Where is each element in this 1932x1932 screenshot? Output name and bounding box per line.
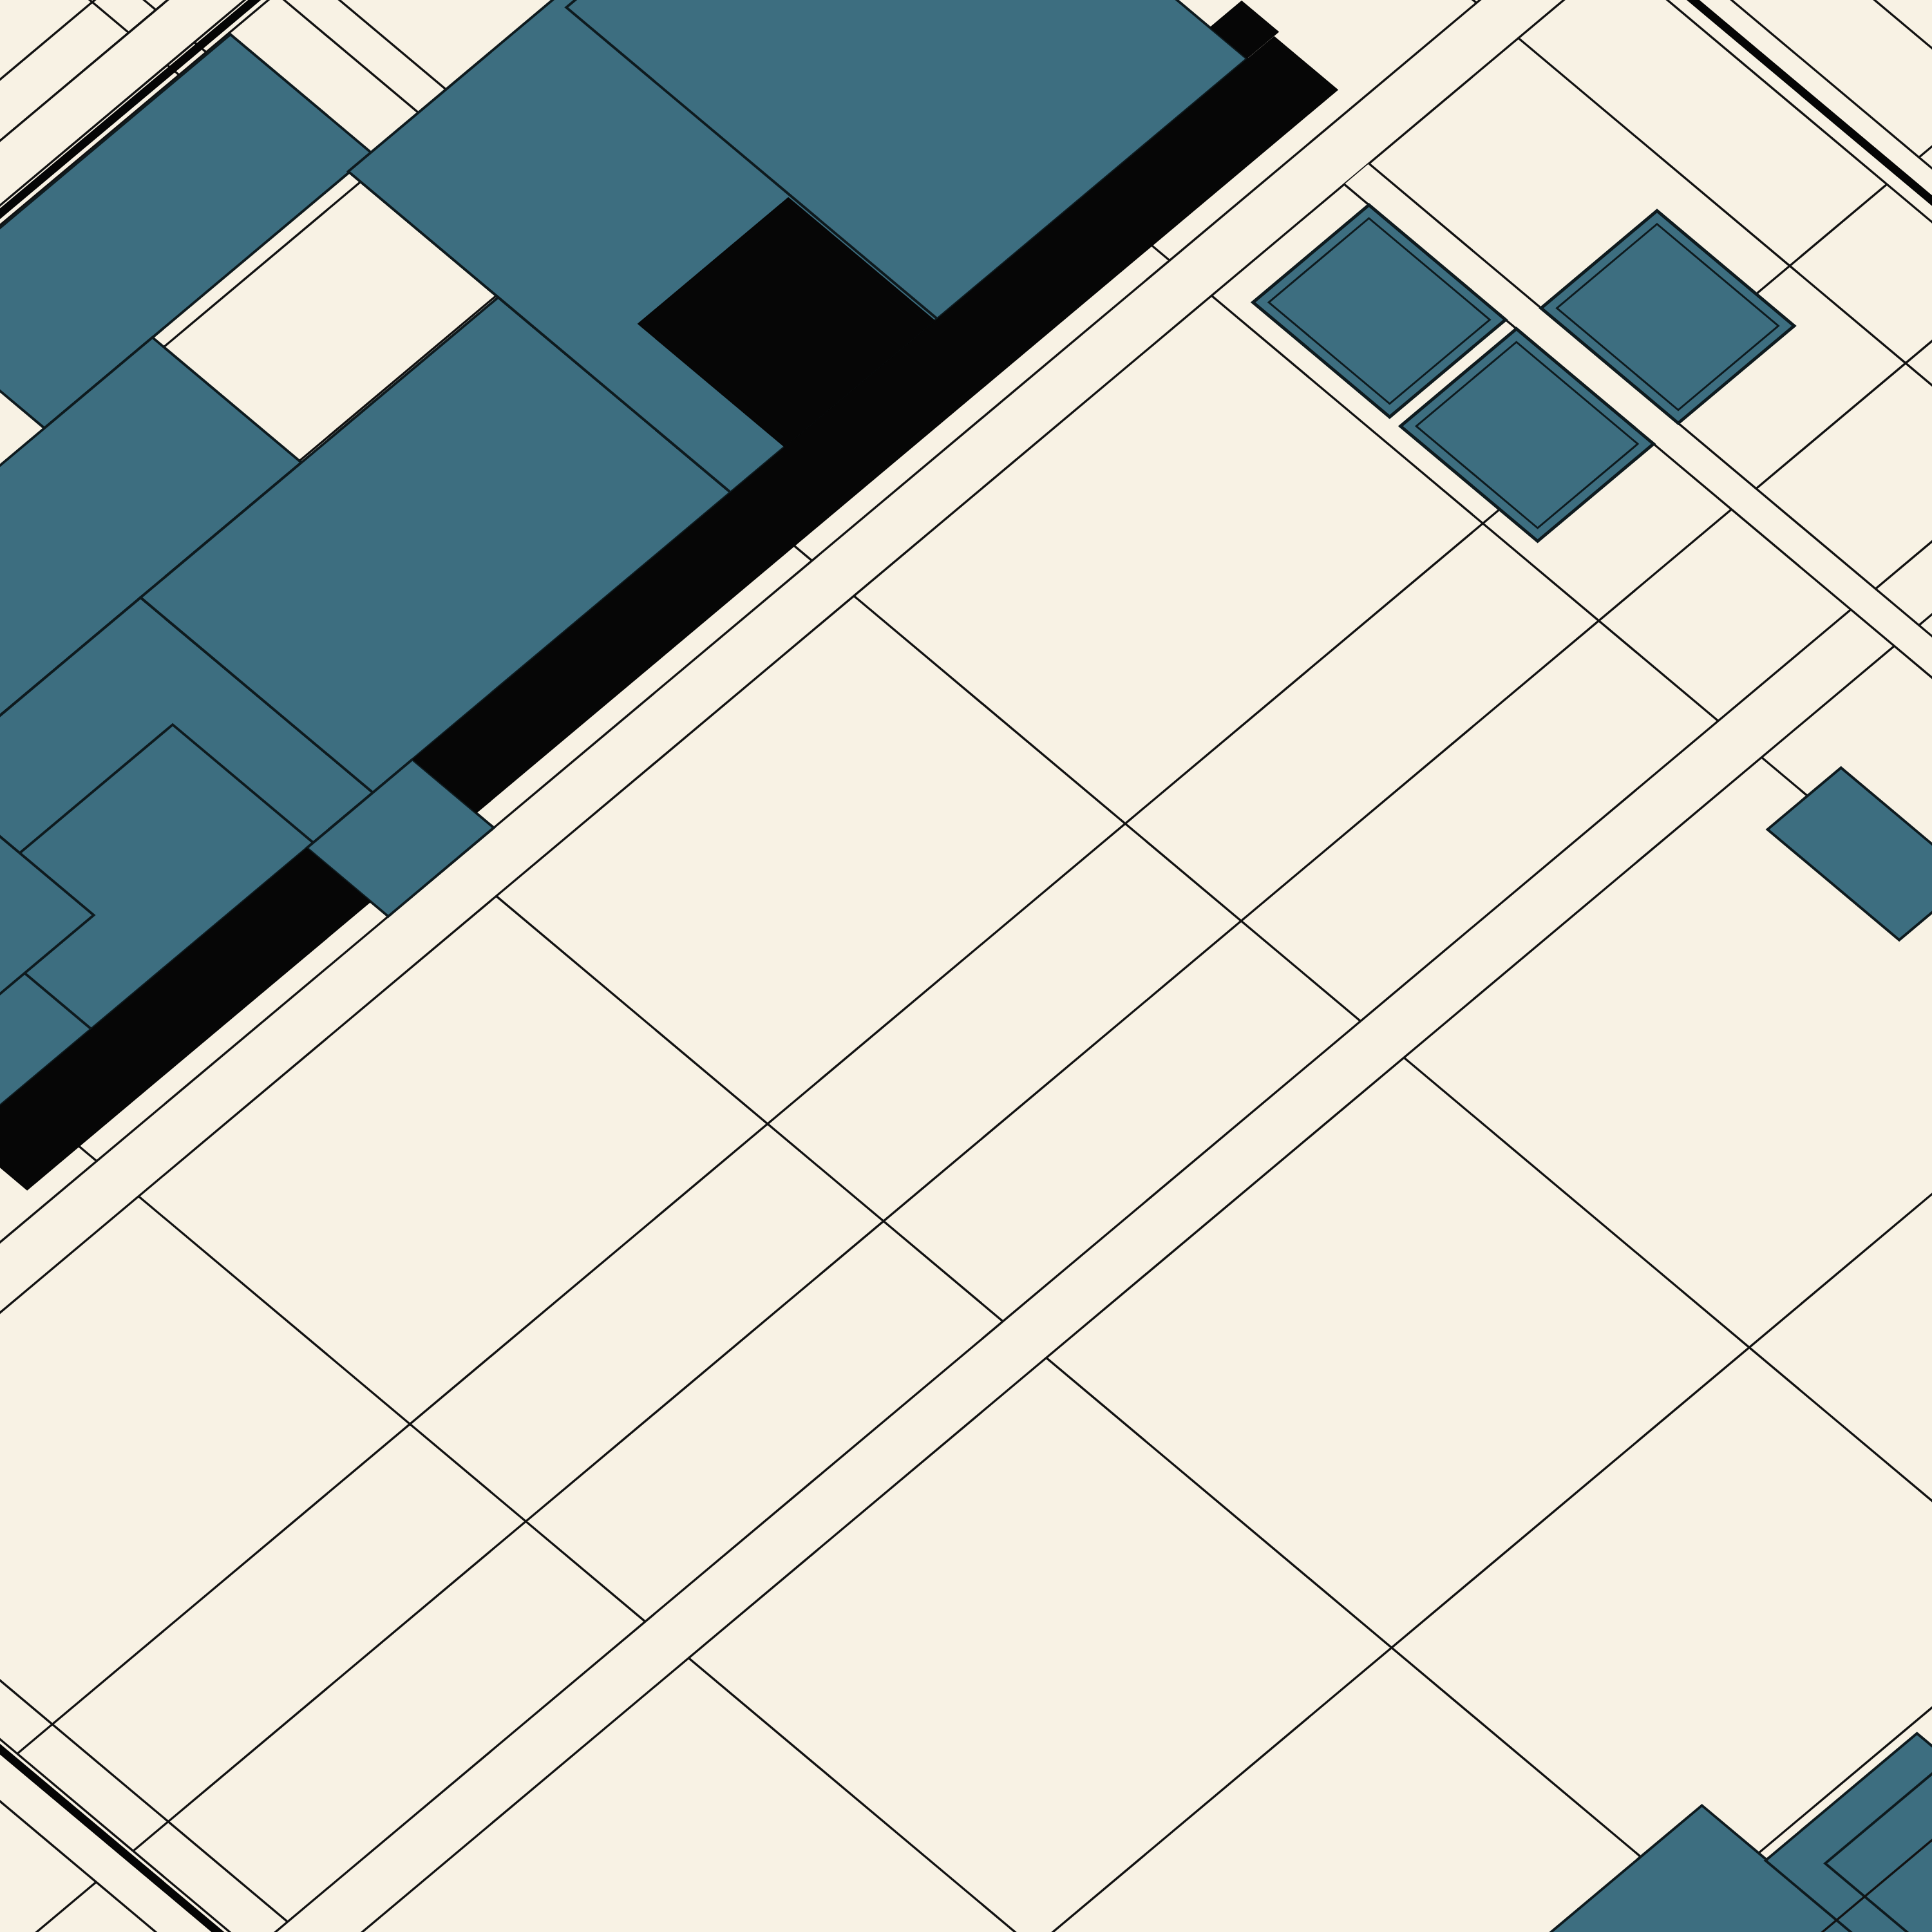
abstract-map [0,0,1932,1932]
map-svg [0,0,1932,1932]
